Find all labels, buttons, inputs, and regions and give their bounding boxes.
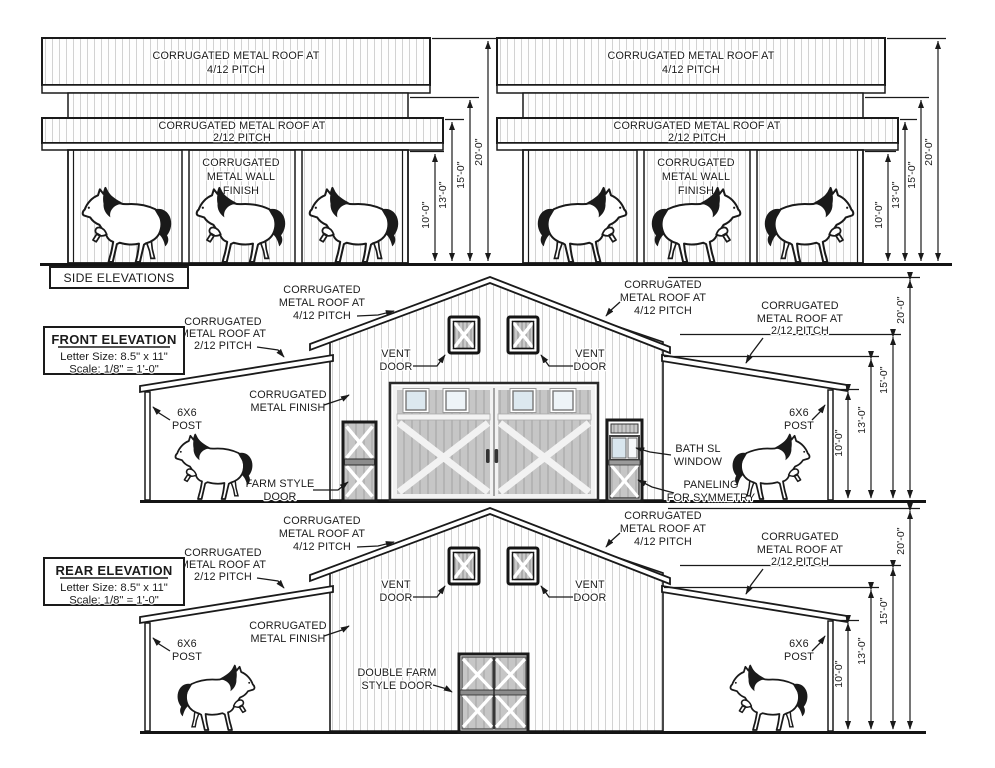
door-handle-left xyxy=(486,449,490,463)
left-window-1-pane xyxy=(406,391,426,410)
dim-text-13ft: 13'-0" xyxy=(891,181,902,209)
double-farm-style-door xyxy=(459,654,528,732)
architectural-drawing-page: CORRUGATED METAL ROOF AT 4/12 PITCH CORR… xyxy=(0,0,995,768)
side-elevations-title: SIDE ELEVATIONS xyxy=(63,271,174,285)
bath-window-pane-right xyxy=(628,438,637,458)
farm-door-mid-rail xyxy=(345,459,375,465)
right-leaf-rail xyxy=(498,414,591,420)
rear-scale: Scale: 1/8" = 1'-0" xyxy=(69,595,159,607)
rear-letter-size: Letter Size: 8.5" x 11" xyxy=(60,582,168,594)
dim-text-13ft: 13'-0" xyxy=(438,181,449,209)
paneling-label-l1: PANELING xyxy=(684,479,739,491)
double-door-label-l2: STYLE DOOR xyxy=(361,680,432,692)
dim-text-15ft: 15'-0" xyxy=(456,161,467,189)
bath-door xyxy=(607,420,642,501)
bath-door-mid-rail xyxy=(609,460,640,465)
side-elevations-title-box: SIDE ELEVATIONS xyxy=(50,267,188,288)
farm-style-door-label-l2: DOOR xyxy=(264,491,297,503)
rear-title-box: REAR ELEVATION Letter Size: 8.5" x 11" S… xyxy=(44,558,184,607)
door-handle-right xyxy=(495,449,499,463)
barn-elevation-drawing: CORRUGATED METAL ROOF AT 4/12 PITCH CORR… xyxy=(0,0,995,768)
right-window-2-pane xyxy=(553,391,573,410)
bath-window-pane-left xyxy=(612,438,626,458)
front-title-box: FRONT ELEVATION Letter Size: 8.5" x 11" … xyxy=(44,327,184,376)
dim-text-20ft: 20'-0" xyxy=(924,138,935,166)
main-sliding-doors xyxy=(390,383,598,500)
right-window-1-pane xyxy=(513,391,533,410)
double-door-label-l1: DOUBLE FARM xyxy=(357,667,436,679)
dim-text-15ft: 15'-0" xyxy=(907,161,918,189)
bath-window-label-l2: WINDOW xyxy=(674,456,723,468)
dim-text-10ft: 10'-0" xyxy=(874,201,885,229)
bath-window-label-l1: BATH SL xyxy=(675,443,720,455)
left-leaf-rail xyxy=(397,414,490,420)
front-scale: Scale: 1/8" = 1'-0" xyxy=(69,364,159,376)
left-window-2-pane xyxy=(446,391,466,410)
rear-elevation-title: REAR ELEVATION xyxy=(55,563,172,578)
front-elevation-title: FRONT ELEVATION xyxy=(51,332,176,347)
dim-text-20ft: 20'-0" xyxy=(474,138,485,166)
front-letter-size: Letter Size: 8.5" x 11" xyxy=(60,351,168,363)
farm-style-door-label-l1: FARM STYLE xyxy=(246,478,315,490)
farm-style-door xyxy=(343,422,376,501)
dim-text-10ft: 10'-0" xyxy=(421,201,432,229)
bath-door-transom xyxy=(611,424,638,433)
paneling-label-l2: FOR SYMMETRY xyxy=(667,492,756,504)
